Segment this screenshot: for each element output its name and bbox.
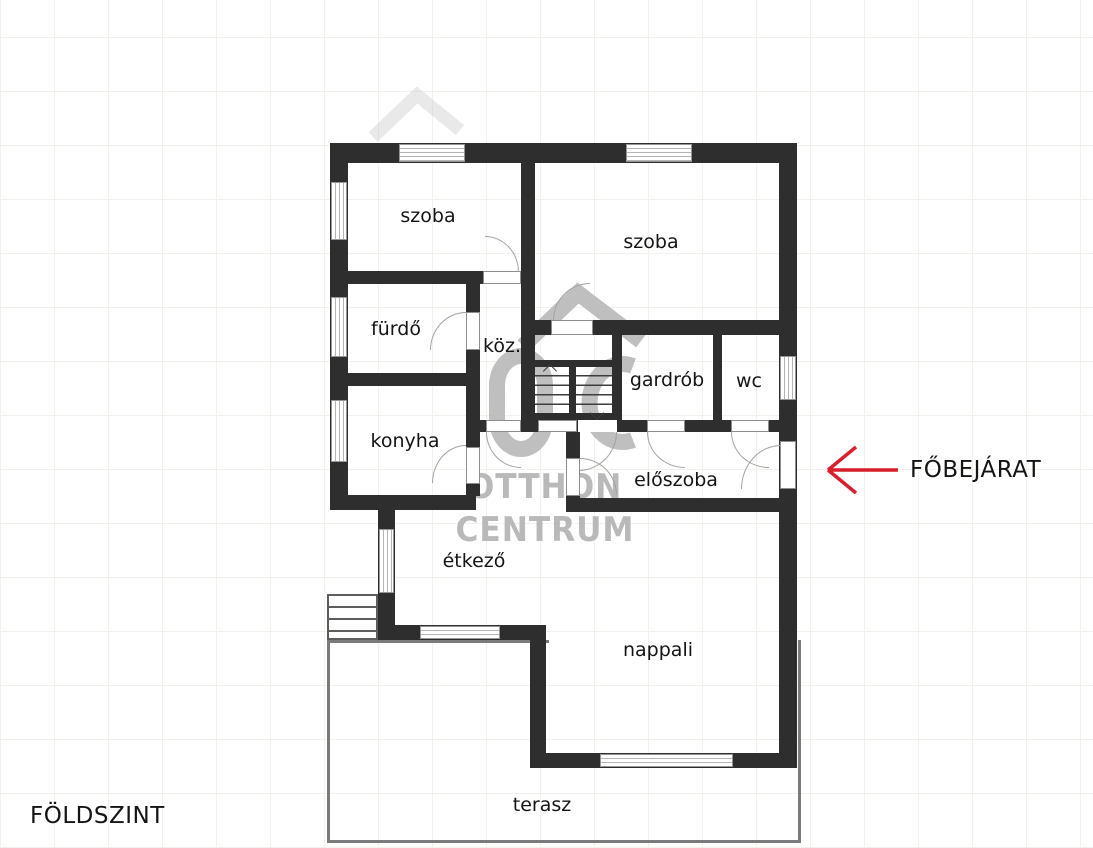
door-opening-stairs <box>578 420 617 432</box>
window-etkezo-side <box>379 529 394 593</box>
window-nappali-bottom <box>600 754 733 767</box>
door-wc <box>731 420 769 432</box>
door-arc-szoba-left <box>485 236 519 272</box>
door-furdo <box>466 312 480 350</box>
wall-nappali-left <box>530 640 546 768</box>
room-label-szoba-left: szoba <box>400 205 455 227</box>
door-szoba-right <box>551 320 593 335</box>
entrance-label: FŐBEJÁRAT <box>910 457 1041 483</box>
door-stairs-eloszoba <box>538 420 577 432</box>
exterior-steps <box>327 594 378 640</box>
wall-gardrob-left <box>612 333 622 432</box>
window-wc-side <box>780 356 796 400</box>
terrace-edge-left <box>327 640 330 843</box>
staircase-rail <box>569 360 576 420</box>
window-konyha-side <box>331 400 347 462</box>
terrace-edge-bottom <box>327 840 801 843</box>
floor-plan: OTTHON CENTRUM <box>0 0 1093 848</box>
room-label-furdo: fürdő <box>371 318 421 340</box>
room-label-konyha: konyha <box>371 430 440 452</box>
window-szoba-right-top <box>626 144 692 162</box>
door-koz-etkezo <box>486 420 521 432</box>
door-szoba-left <box>483 271 521 284</box>
wall-corridor-row-c <box>617 420 647 432</box>
wall-corridor-row-d <box>685 420 731 432</box>
room-label-koz: köz. <box>483 335 521 357</box>
door-gardrob <box>647 420 685 432</box>
door-etkezo-eloszoba <box>566 458 580 496</box>
wall-konyha-bottom <box>330 495 476 510</box>
room-label-etkezo: étkező <box>443 550 506 572</box>
terrace-edge-right <box>798 640 801 843</box>
wall-central <box>521 163 535 333</box>
brand-name-line2: CENTRUM <box>456 510 635 550</box>
window-szoba-left-top <box>399 144 465 162</box>
window-szoba-left-side <box>331 182 347 240</box>
wall-corridor-row-e <box>769 420 779 432</box>
room-label-nappali: nappali <box>623 639 693 661</box>
wall-corridor-row-b <box>521 420 538 432</box>
window-etkezo-bottom <box>420 626 500 639</box>
wall-corridor-row-a <box>466 420 488 432</box>
terrace-edge-top <box>327 640 549 643</box>
room-label-eloszoba: előszoba <box>634 469 718 491</box>
wall-eloszoba-bottom <box>566 498 797 512</box>
door-konyha <box>466 447 480 484</box>
wall-furdo-bottom <box>348 373 466 386</box>
entrance-arrow-icon <box>818 442 902 498</box>
door-main-entrance <box>780 441 796 489</box>
room-label-terasz: terasz <box>513 794 571 816</box>
wall-gardrob-wc-divider <box>713 333 722 432</box>
door-arc-furdo <box>430 312 466 350</box>
floor-label: FÖLDSZINT <box>30 803 165 829</box>
window-furdo-side <box>331 297 347 357</box>
room-label-gardrob: gardrób <box>630 369 704 391</box>
wall-stairwell-left <box>521 333 535 420</box>
room-label-szoba-right: szoba <box>623 231 678 253</box>
room-label-wc: wc <box>736 370 762 392</box>
brand-roof-faint-icon <box>365 85 465 145</box>
